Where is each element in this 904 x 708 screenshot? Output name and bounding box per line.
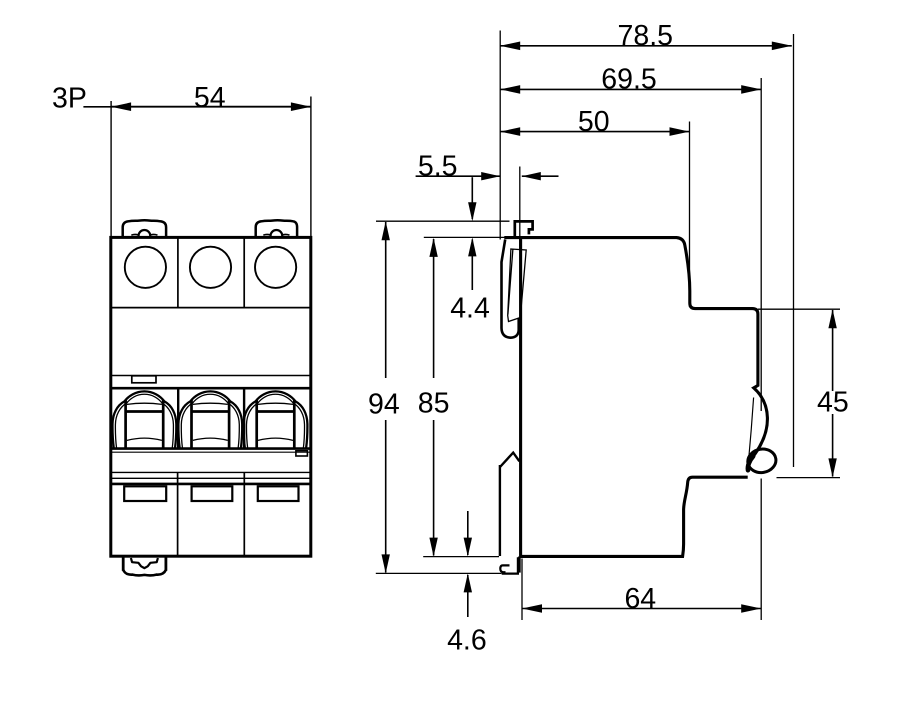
- svg-text:4.4: 4.4: [450, 293, 490, 325]
- svg-text:45: 45: [817, 387, 849, 419]
- svg-text:5.5: 5.5: [418, 150, 458, 182]
- svg-text:50: 50: [578, 106, 610, 138]
- svg-text:3P: 3P: [52, 83, 87, 115]
- svg-text:85: 85: [418, 388, 450, 420]
- svg-text:4.6: 4.6: [447, 625, 487, 657]
- svg-text:94: 94: [368, 389, 400, 421]
- svg-text:69.5: 69.5: [601, 64, 656, 96]
- svg-text:78.5: 78.5: [618, 20, 673, 52]
- svg-text:64: 64: [624, 583, 656, 615]
- svg-text:54: 54: [194, 82, 226, 114]
